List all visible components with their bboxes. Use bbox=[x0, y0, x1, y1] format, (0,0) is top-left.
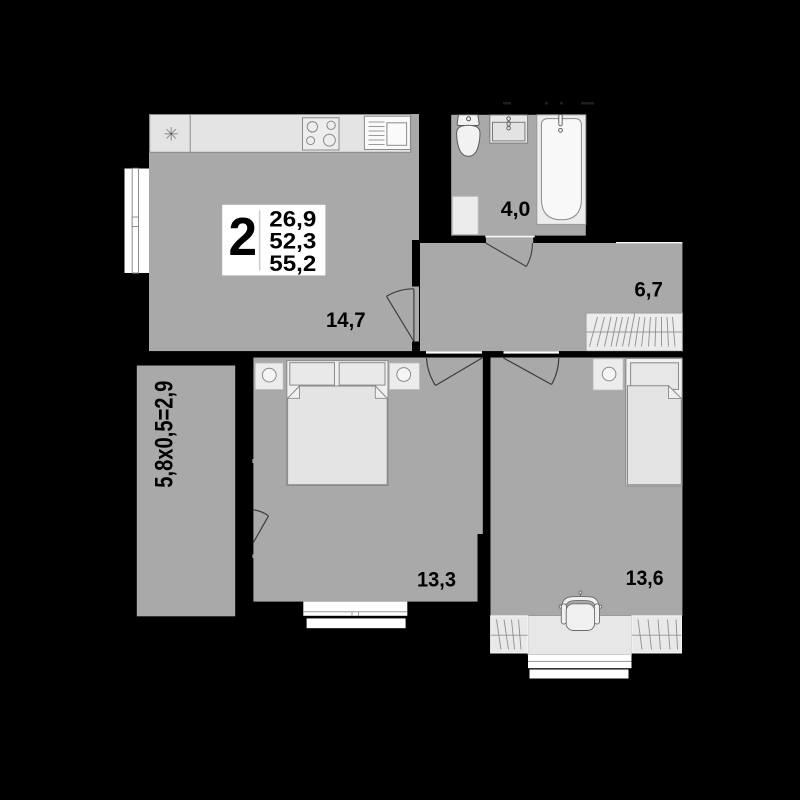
svg-text:5,8x0,5=2,9: 5,8x0,5=2,9 bbox=[151, 381, 179, 488]
svg-text:55,2: 55,2 bbox=[269, 251, 316, 276]
svg-text:14,7: 14,7 bbox=[326, 308, 366, 332]
svg-text:13,3: 13,3 bbox=[417, 568, 456, 592]
svg-text:2: 2 bbox=[229, 207, 258, 267]
svg-text:52,3: 52,3 bbox=[269, 229, 316, 254]
svg-text:13,6: 13,6 bbox=[626, 566, 664, 590]
svg-text:4,0: 4,0 bbox=[501, 197, 531, 221]
svg-text:6,7: 6,7 bbox=[634, 278, 663, 302]
